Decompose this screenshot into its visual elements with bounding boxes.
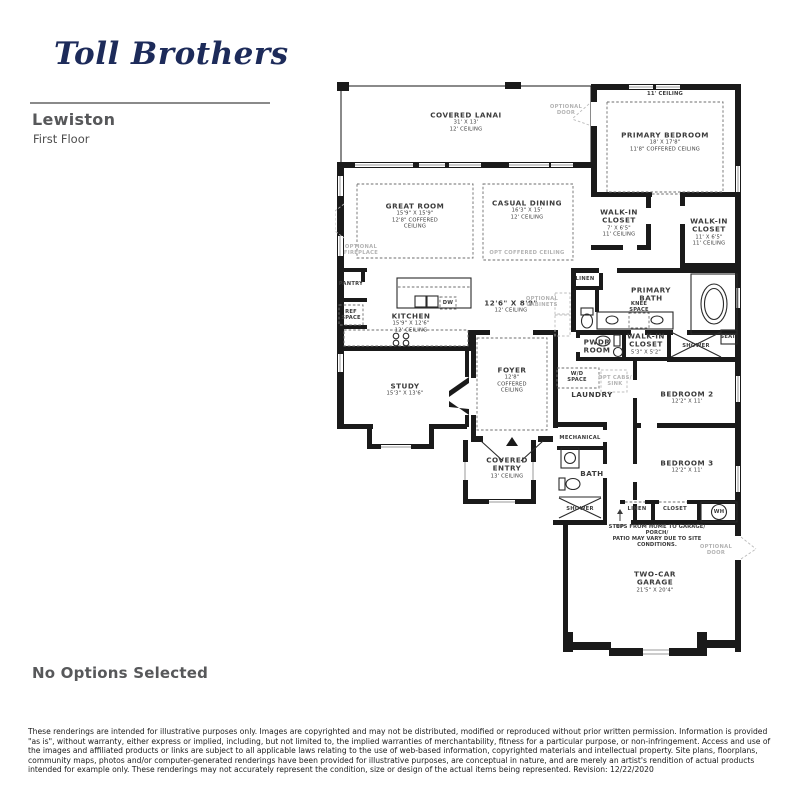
label-garage: TWO-CAR GARAGE21'5" X 20'4" xyxy=(634,570,676,593)
header-divider xyxy=(30,102,270,104)
label-kitchen: KITCHEN15'9" X 12'6" 12' CEILING xyxy=(392,313,431,334)
label-shower-primary: SHOWER xyxy=(682,343,710,349)
label-casual-dining: CASUAL DINING16'3" X 15' 12' CEILING xyxy=(492,200,562,221)
label-shower-bath: SHOWER xyxy=(566,506,594,512)
label-optional-door-garage: OPTIONAL DOOR xyxy=(700,544,732,556)
label-foyer: FOYER12'8" COFFERED CEILING xyxy=(497,367,526,394)
label-primary-bedroom-ceiling: 11' CEILING xyxy=(647,91,683,97)
label-walk-in-closet-3: WALK-IN CLOSET5'3" X 5'2" xyxy=(627,332,665,355)
label-walk-in-closet-1: WALK-IN CLOSET7' X 6'5" 11' CEILING xyxy=(600,208,638,237)
label-laundry: LAUNDRY xyxy=(571,391,613,399)
label-closet: CLOSET xyxy=(663,506,687,512)
label-optional-cabinets: OPTIONAL CABINETS xyxy=(526,296,558,308)
label-opt-coffered-ceiling: OPT COFFERED CEILING xyxy=(489,250,564,256)
options-status: No Options Selected xyxy=(32,664,208,682)
plan-floor: First Floor xyxy=(33,132,89,146)
label-wh: WH xyxy=(714,509,724,515)
label-seat: SEAT xyxy=(720,334,735,340)
toll-brothers-logo: Toll Brothers xyxy=(54,36,289,72)
floor-plan: COVERED LANAI31' X 13' 12' CEILINGOPTION… xyxy=(335,80,775,660)
label-optional-fireplace: OPTIONAL FIREPLACE xyxy=(344,244,378,256)
plan-labels: COVERED LANAI31' X 13' 12' CEILINGOPTION… xyxy=(335,80,775,660)
label-study: STUDY15'3" X 13'6" xyxy=(387,383,424,398)
label-bedroom-3: BEDROOM 312'2" X 11' xyxy=(660,460,713,475)
label-pwdr-room: PWDR ROOM xyxy=(584,339,611,356)
label-linen-primary: LINEN xyxy=(576,276,595,282)
label-bath: BATH xyxy=(580,470,603,478)
label-mechanical: MECHANICAL xyxy=(559,435,600,441)
label-primary-bedroom: PRIMARY BEDROOM18' X 17'8" 11'8" COFFERE… xyxy=(621,132,709,153)
plan-name: Lewiston xyxy=(32,110,115,129)
label-covered-lanai: COVERED LANAI31' X 13' 12' CEILING xyxy=(430,112,501,133)
page: Toll Brothers Lewiston First Floor xyxy=(0,0,800,800)
label-optional-door-lanai: OPTIONAL DOOR xyxy=(550,104,582,116)
label-bedroom-2: BEDROOM 212'2" X 11' xyxy=(660,391,713,406)
label-dw: DW xyxy=(443,300,453,306)
label-pantry: PANTRY xyxy=(339,281,364,287)
label-opt-cabs-sink: OPT CABS/ SINK xyxy=(598,375,632,387)
label-steps-note: STEPS FROM HOME TO GARAGE/ PORCH/ PATIO … xyxy=(598,524,716,549)
label-great-room: GREAT ROOM15'9" X 15'9" 12'8" COFFERED C… xyxy=(386,203,445,230)
label-ref-space: REF SPACE xyxy=(341,309,360,321)
label-linen-hall: LINEN xyxy=(628,506,647,512)
disclaimer-text: These renderings are intended for illust… xyxy=(28,727,776,775)
label-knee-space: KNEE SPACE xyxy=(629,301,648,313)
label-covered-entry: COVERED ENTRY13' CEILING xyxy=(486,456,528,479)
label-walk-in-closet-2: WALK-IN CLOSET11' X 6'5" 11' CEILING xyxy=(690,217,728,246)
label-wd-space: W/D SPACE xyxy=(567,371,586,383)
